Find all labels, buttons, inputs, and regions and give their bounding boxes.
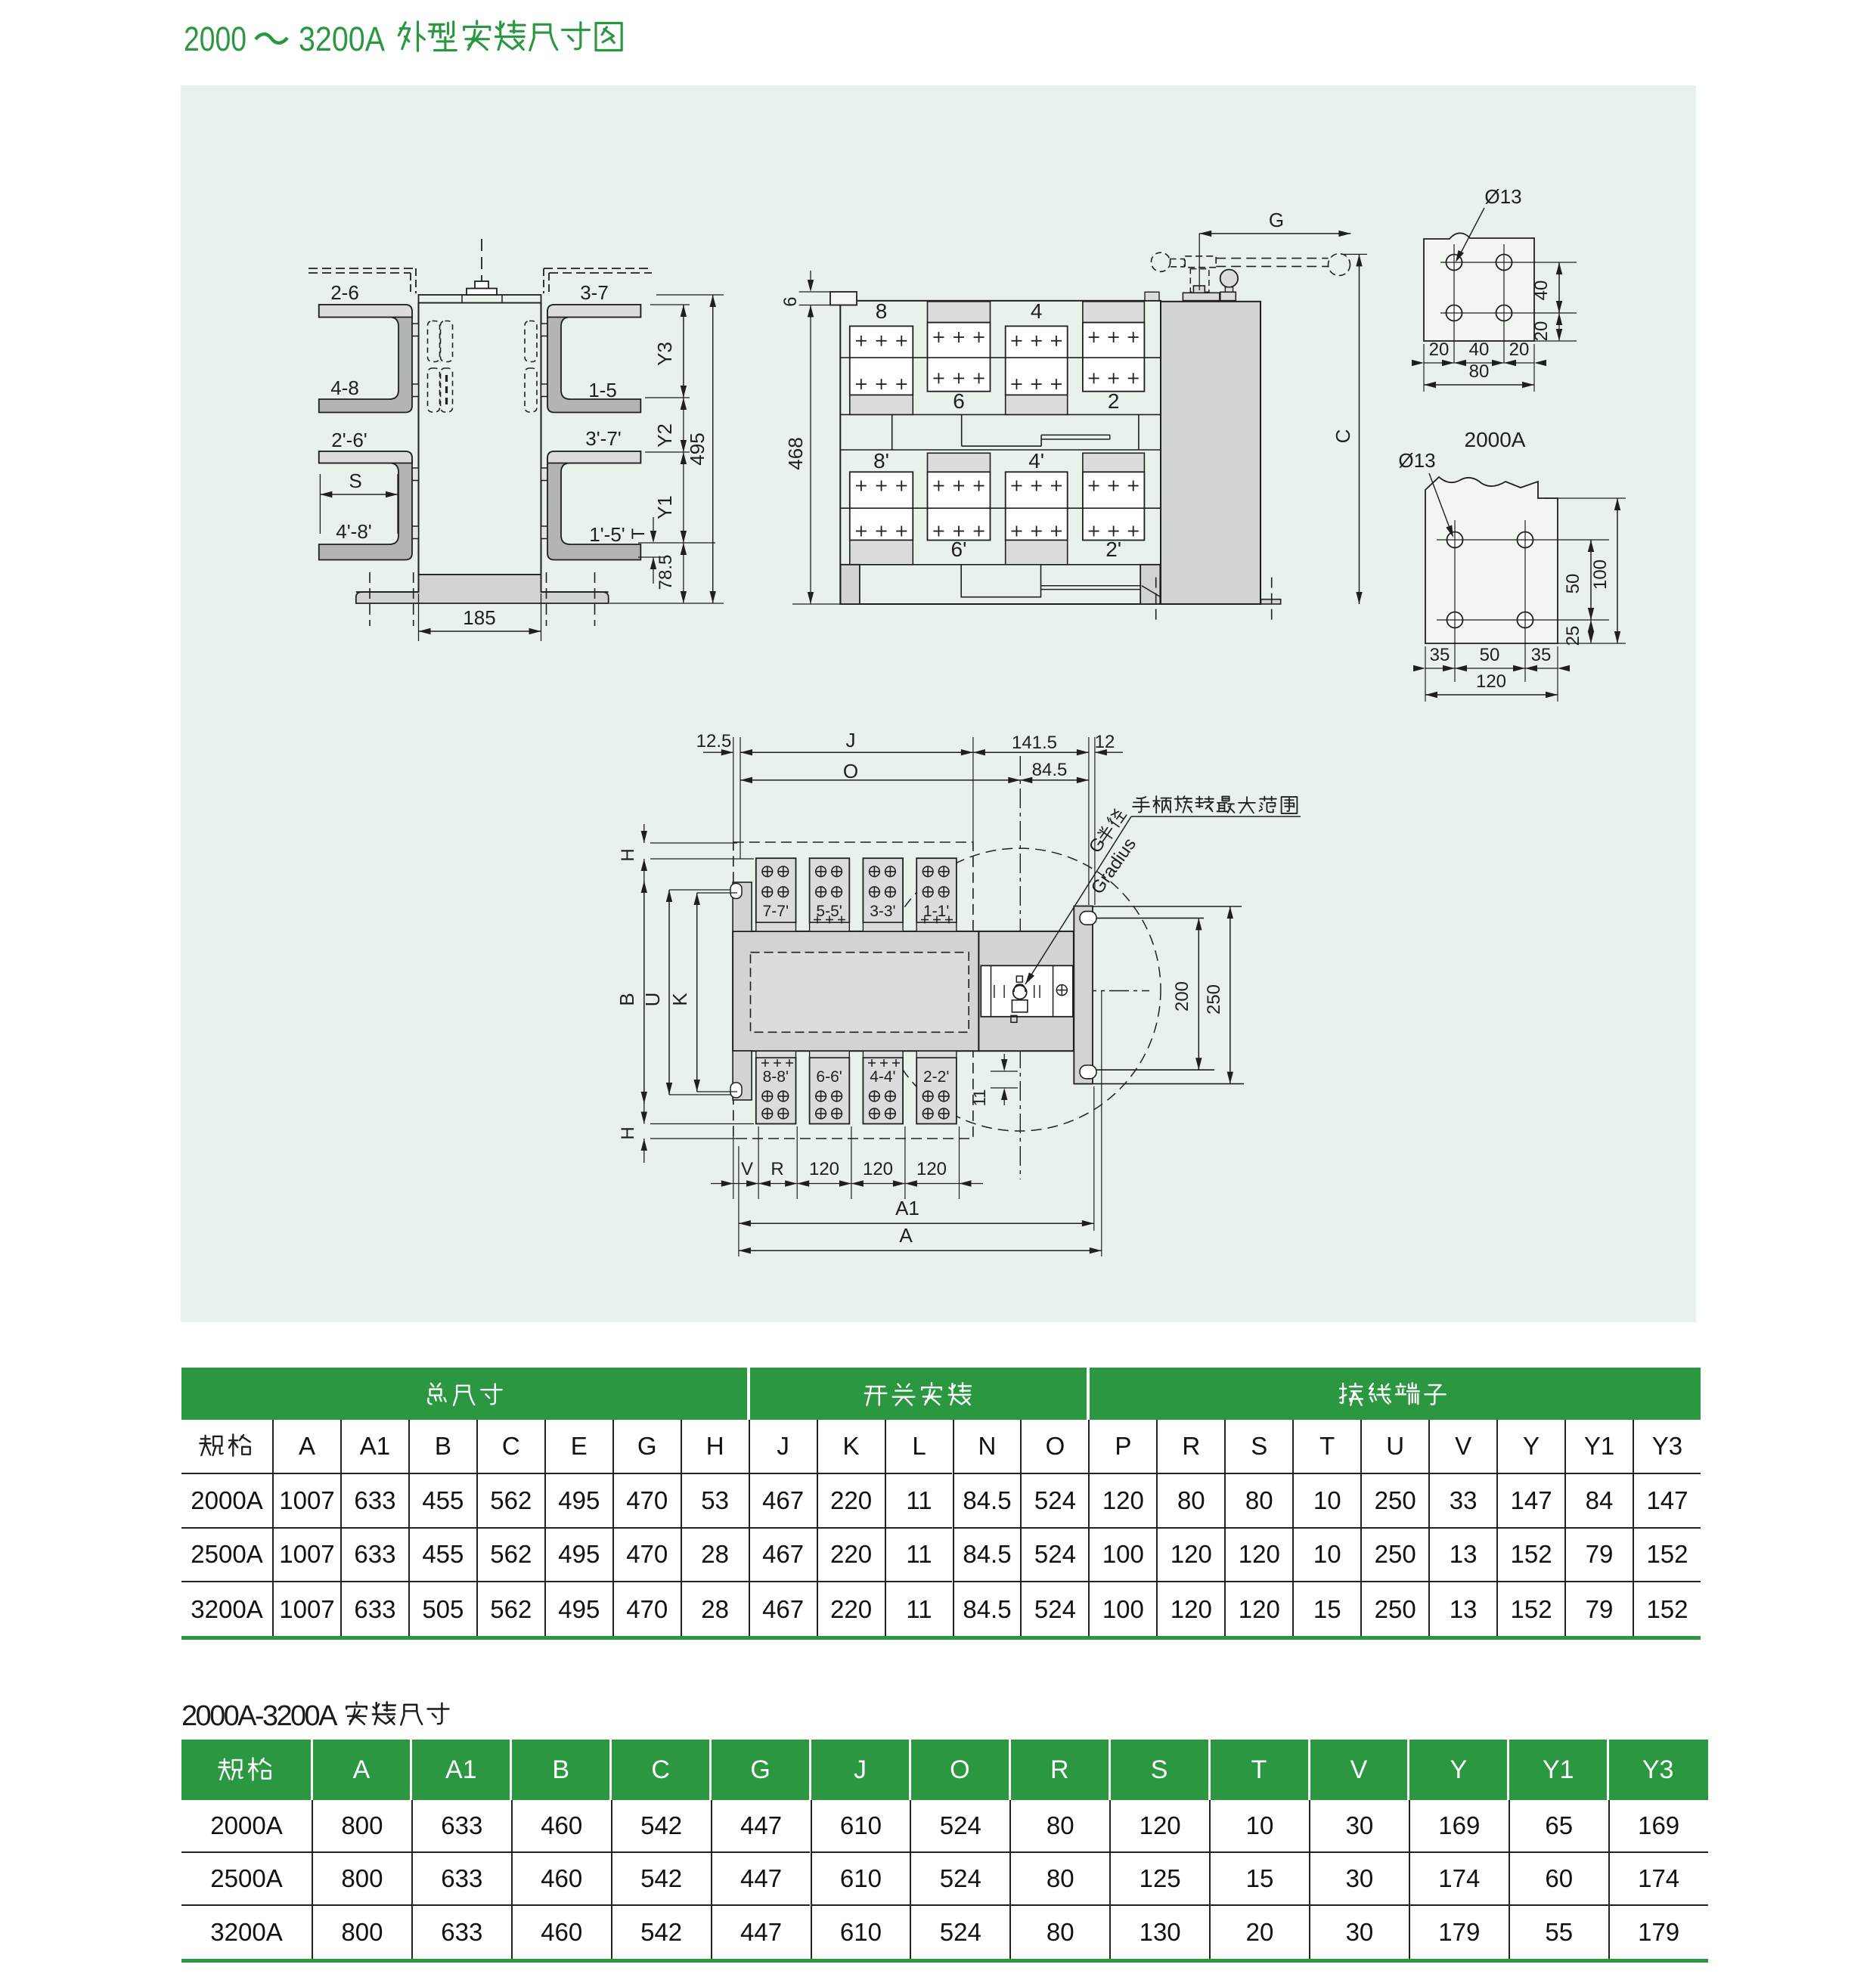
svg-text:120: 120	[863, 1159, 893, 1179]
svg-text:T: T	[628, 528, 649, 539]
svg-text:3200A: 3200A	[299, 20, 385, 58]
svg-text:A: A	[899, 1224, 913, 1247]
svg-text:20: 20	[1531, 321, 1552, 342]
svg-text:4'-8': 4'-8'	[336, 520, 372, 543]
svg-text:4-8: 4-8	[330, 376, 359, 399]
svg-text:3-7: 3-7	[580, 281, 609, 304]
svg-text:25: 25	[1563, 626, 1583, 646]
svg-text:3-3': 3-3'	[870, 903, 895, 920]
svg-text:2000: 2000	[184, 20, 247, 58]
svg-text:6-6': 6-6'	[816, 1068, 842, 1086]
svg-text:35: 35	[1531, 645, 1552, 665]
svg-text:2-2': 2-2'	[923, 1068, 949, 1086]
svg-text:3'-7': 3'-7'	[585, 427, 622, 450]
svg-text:2: 2	[1108, 389, 1120, 413]
svg-text:120: 120	[809, 1159, 839, 1179]
svg-text:2-6: 2-6	[330, 281, 359, 304]
svg-text:78.5: 78.5	[656, 555, 676, 590]
svg-text:Y1: Y1	[653, 495, 676, 519]
svg-text:2'-6': 2'-6'	[331, 429, 367, 451]
svg-text:H: H	[618, 1126, 638, 1139]
svg-text:141.5: 141.5	[1012, 733, 1057, 753]
svg-text:C: C	[1332, 429, 1354, 444]
svg-text:50: 50	[1480, 645, 1500, 665]
svg-text:120: 120	[916, 1159, 947, 1179]
svg-text:S: S	[349, 469, 361, 492]
svg-text:40: 40	[1469, 339, 1490, 360]
svg-text:100: 100	[1590, 559, 1611, 590]
svg-text:35: 35	[1430, 645, 1450, 665]
svg-text:4-4': 4-4'	[870, 1068, 895, 1086]
svg-text:4: 4	[1031, 299, 1043, 323]
svg-text:8': 8'	[873, 449, 889, 473]
svg-text:80: 80	[1469, 361, 1490, 382]
svg-text:7-7': 7-7'	[763, 903, 789, 920]
svg-text:R: R	[771, 1159, 783, 1179]
svg-text:1'-5': 1'-5'	[589, 523, 625, 546]
svg-text:G: G	[1269, 209, 1284, 231]
svg-text:Y3: Y3	[653, 342, 676, 366]
svg-text:120: 120	[1476, 671, 1506, 692]
svg-text:468: 468	[784, 437, 807, 469]
svg-text:B: B	[616, 993, 638, 1005]
svg-text:84.5: 84.5	[1032, 760, 1068, 780]
svg-text:200: 200	[1172, 981, 1192, 1012]
svg-text:1-1': 1-1'	[923, 903, 949, 920]
svg-text:12.5: 12.5	[696, 731, 732, 751]
svg-text:4': 4'	[1028, 449, 1044, 473]
svg-text:8: 8	[876, 299, 888, 323]
svg-text:6': 6'	[951, 538, 967, 561]
svg-text:J: J	[846, 729, 856, 751]
svg-text:2': 2'	[1105, 538, 1121, 561]
svg-text:O: O	[843, 760, 858, 782]
svg-text:40: 40	[1531, 280, 1552, 301]
svg-text:Y2: Y2	[653, 423, 676, 448]
svg-text:6: 6	[780, 296, 801, 306]
svg-text:12: 12	[1095, 732, 1115, 752]
svg-text:20: 20	[1429, 339, 1450, 360]
svg-text:1-5: 1-5	[588, 379, 617, 401]
svg-text:2000A: 2000A	[1465, 428, 1526, 451]
svg-text:8-8': 8-8'	[763, 1068, 789, 1086]
svg-text:250: 250	[1204, 984, 1224, 1015]
svg-text:11: 11	[970, 1089, 989, 1107]
svg-text:495: 495	[686, 432, 709, 465]
svg-text:H: H	[618, 848, 638, 861]
svg-text:V: V	[741, 1159, 753, 1179]
svg-text:20: 20	[1509, 339, 1530, 360]
svg-text:185: 185	[463, 606, 495, 629]
svg-text:A1: A1	[895, 1197, 919, 1219]
svg-text:Ø13: Ø13	[1484, 185, 1521, 208]
svg-text:6: 6	[953, 389, 965, 413]
svg-text:K: K	[668, 993, 691, 1006]
svg-text:50: 50	[1563, 574, 1583, 594]
svg-text:U: U	[641, 993, 664, 1007]
svg-text:Ø13: Ø13	[1398, 449, 1435, 472]
